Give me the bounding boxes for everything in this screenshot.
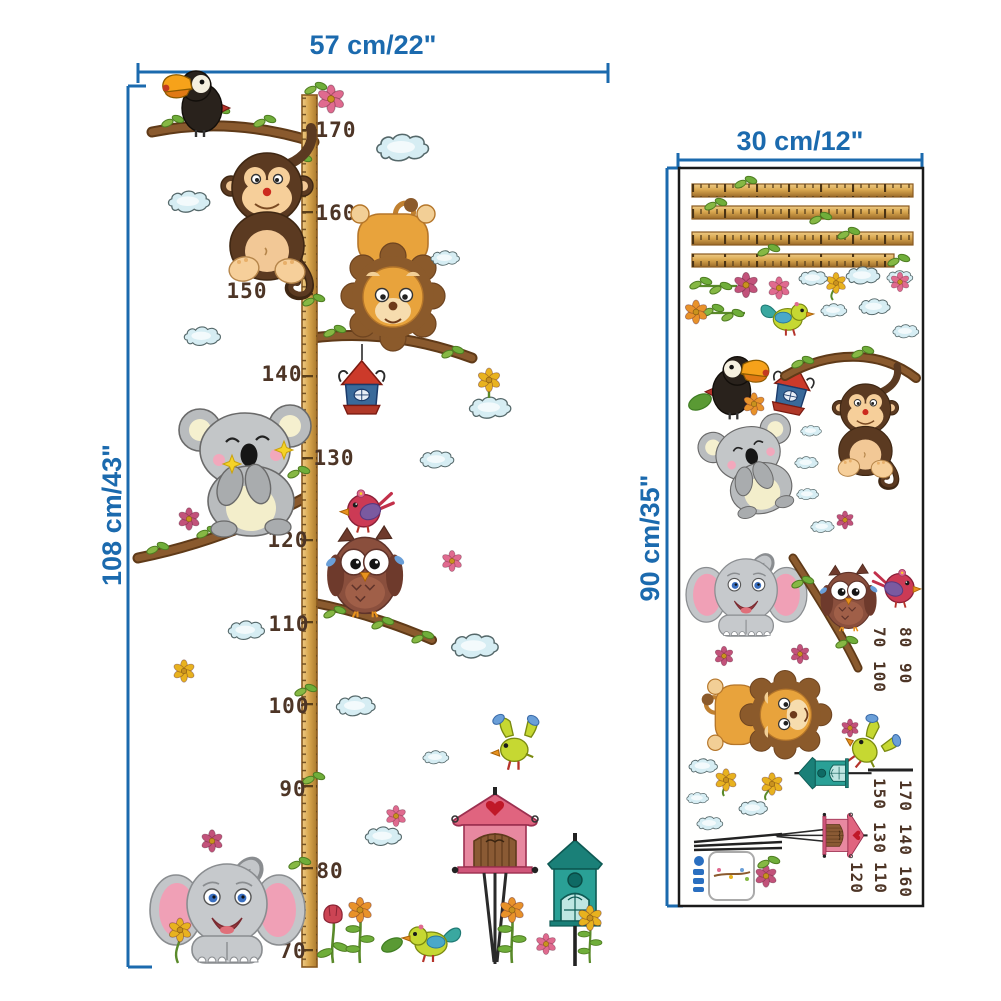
rotated-number: 140 bbox=[896, 824, 915, 856]
flower-icon bbox=[441, 551, 462, 572]
cloud-icon bbox=[739, 801, 767, 816]
cloud-icon bbox=[811, 521, 834, 533]
lion-sticker bbox=[702, 671, 832, 759]
sheet-height-label: 90 cm/35" bbox=[635, 475, 665, 602]
hanging-birdhouse-sticker bbox=[339, 361, 384, 414]
sheet-width-label: 30 cm/12" bbox=[737, 126, 864, 156]
main-width-label: 57 cm/22" bbox=[310, 30, 437, 60]
flower-stem bbox=[346, 897, 374, 963]
koala-sticker bbox=[179, 405, 311, 537]
cloud-icon bbox=[795, 457, 818, 469]
ruler-number-80: 80 bbox=[316, 859, 343, 883]
brand-sticker bbox=[709, 852, 754, 900]
teal-birdhouse-sticker bbox=[548, 833, 602, 966]
cloud-icon bbox=[797, 489, 819, 500]
monkey-sticker bbox=[221, 128, 313, 296]
rotated-number: 120 bbox=[847, 862, 866, 894]
cloud-icon bbox=[687, 793, 709, 804]
flower-icon bbox=[535, 934, 556, 955]
rotated-number: 170 bbox=[896, 780, 915, 812]
rotated-number: 160 bbox=[896, 866, 915, 898]
rotated-number: 70 bbox=[870, 627, 889, 648]
ruler-number-170: 170 bbox=[316, 118, 357, 142]
flower-stem bbox=[498, 897, 526, 963]
flower-icon bbox=[173, 660, 196, 682]
cloud-icon bbox=[801, 426, 822, 437]
rotated-number: 150 bbox=[870, 778, 889, 810]
main-height-label: 108 cm/43" bbox=[97, 444, 127, 586]
flower-icon bbox=[201, 830, 224, 852]
ruler-number-140: 140 bbox=[262, 362, 303, 386]
rotated-number: 100 bbox=[870, 661, 889, 693]
sticker-sheet: 30 cm/12" 90 cm/35" bbox=[635, 126, 923, 906]
scene: 57 cm/22" 108 cm/43" 170 1 bbox=[0, 0, 1001, 1001]
flower-icon bbox=[178, 508, 201, 530]
flower-icon bbox=[477, 368, 501, 392]
lion-sticker bbox=[341, 198, 445, 351]
flower-icon bbox=[385, 806, 406, 827]
ruler-number-110: 110 bbox=[269, 612, 310, 636]
ruler-number-160: 160 bbox=[316, 201, 357, 225]
green-bird-flying-sticker bbox=[491, 712, 541, 769]
rotated-number: 130 bbox=[870, 822, 889, 854]
red-bird-sticker bbox=[340, 490, 393, 533]
rotated-number: 110 bbox=[871, 862, 890, 894]
main-chart: 57 cm/22" 108 cm/43" 170 1 bbox=[97, 30, 608, 967]
ruler-number-150: 150 bbox=[227, 279, 268, 303]
product-image: 57 cm/22" 108 cm/43" 170 1 bbox=[0, 0, 1001, 1001]
rotated-number: 90 bbox=[896, 663, 915, 684]
ruler-number-90: 90 bbox=[279, 777, 306, 801]
rotated-number: 80 bbox=[896, 627, 915, 648]
green-bird-sticker bbox=[402, 925, 461, 962]
height-dimension bbox=[128, 86, 152, 967]
ruler-number-100: 100 bbox=[269, 694, 310, 718]
tulip-icon bbox=[316, 905, 349, 963]
flower-stem bbox=[577, 905, 603, 963]
ruler-number-130: 130 bbox=[314, 446, 355, 470]
cloud-icon bbox=[689, 759, 717, 774]
cloud-icon bbox=[697, 817, 723, 830]
